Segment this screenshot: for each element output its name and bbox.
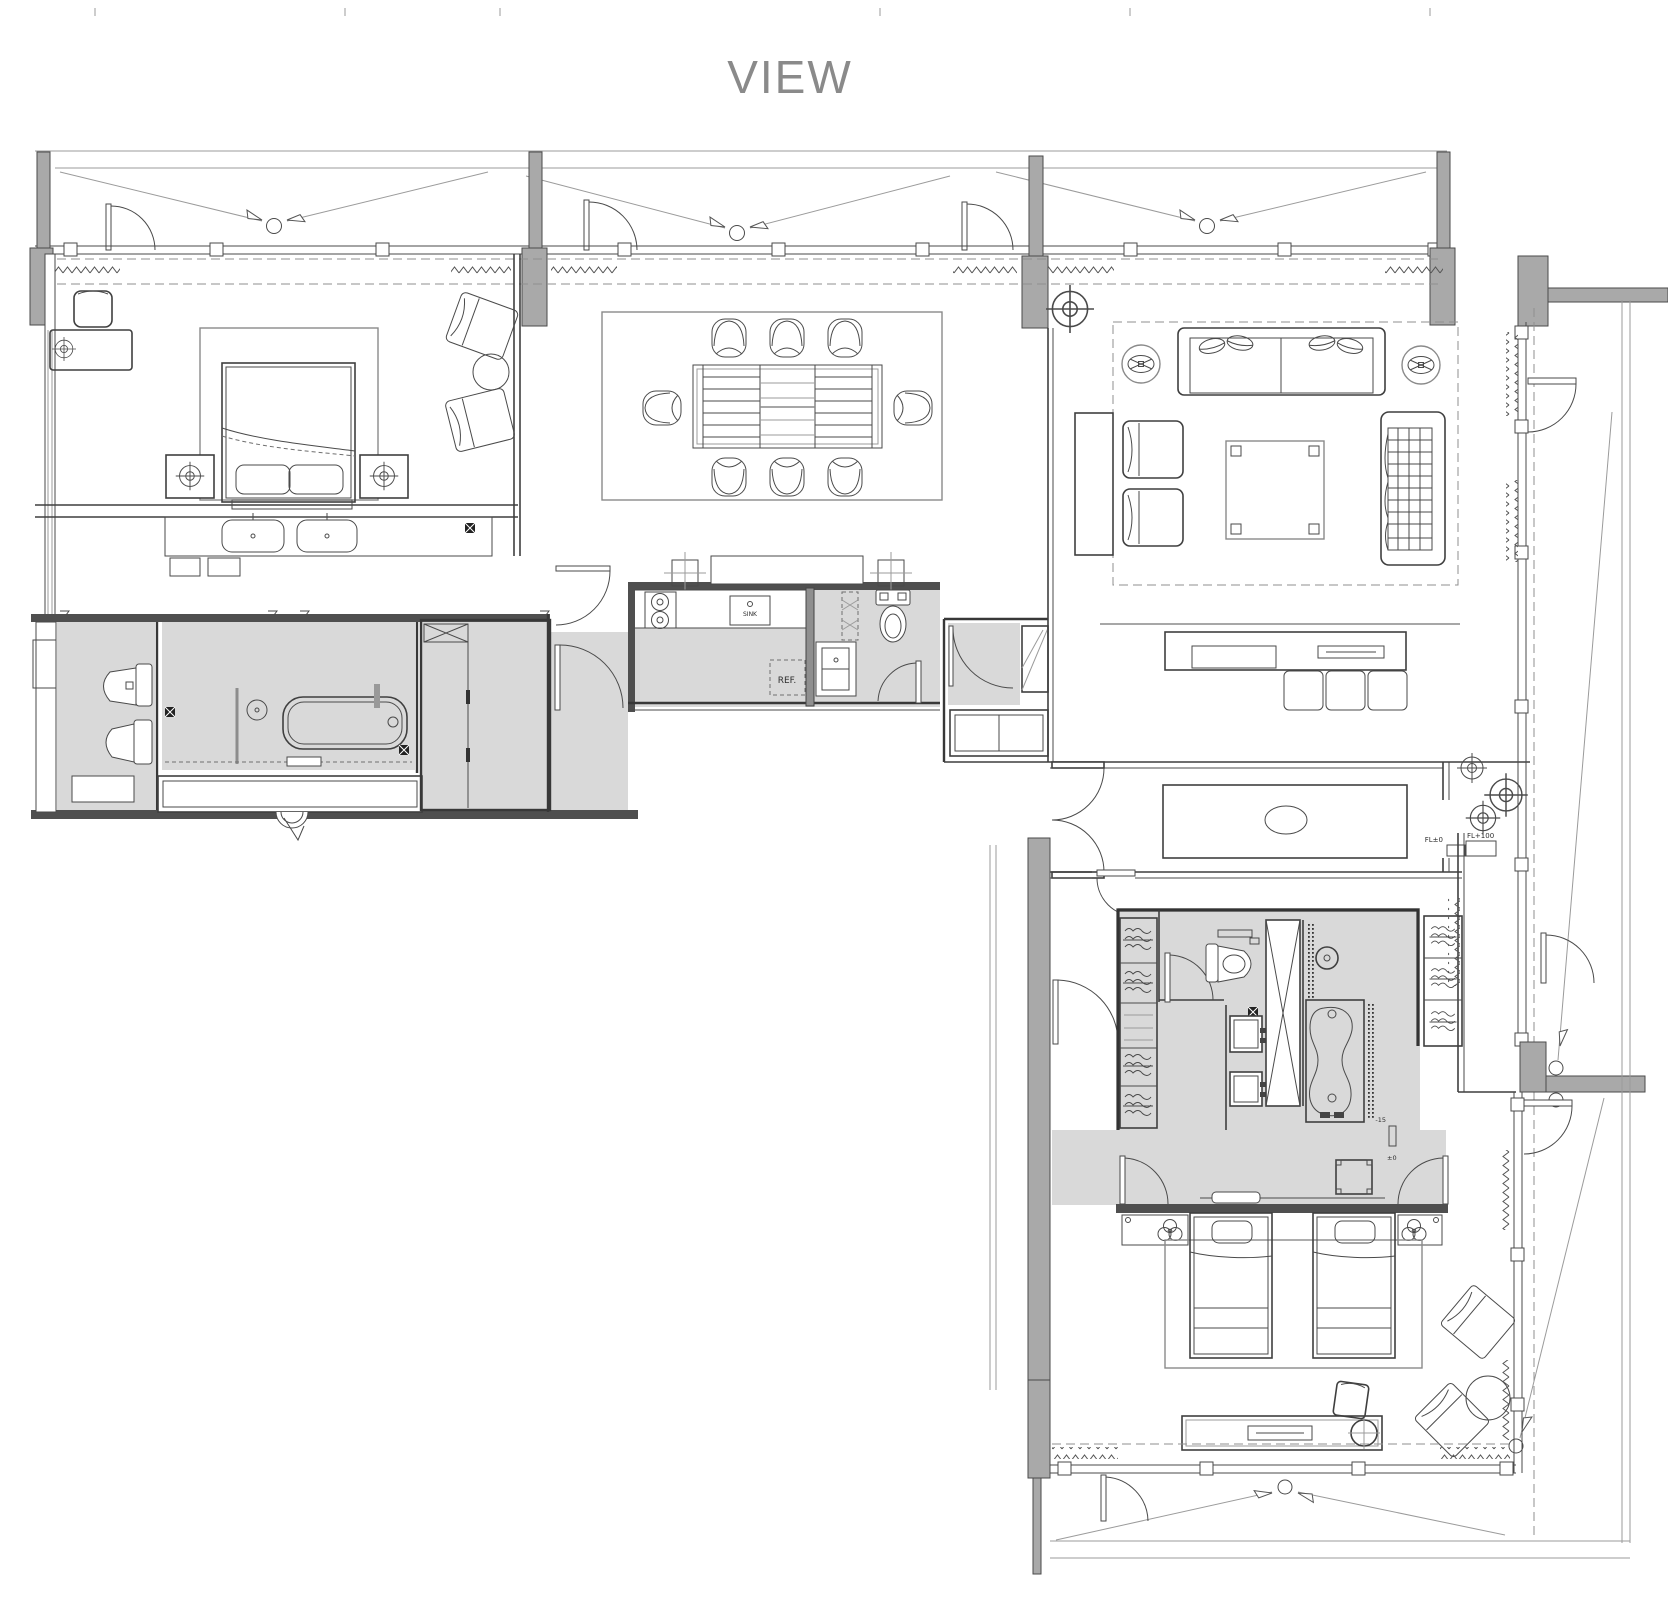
armchair xyxy=(1123,421,1183,478)
console-cabinet xyxy=(1075,413,1113,555)
grid-marker xyxy=(1484,773,1528,817)
floor-drain xyxy=(165,707,175,717)
dining-chair xyxy=(712,458,746,496)
balcony-door-bedroom xyxy=(106,204,155,250)
stool xyxy=(170,558,200,576)
side-table xyxy=(473,354,509,390)
basin xyxy=(1230,1072,1262,1106)
grid-marker xyxy=(1457,753,1487,783)
sofa-pillow xyxy=(1336,336,1365,356)
balcony-swing-door-2 xyxy=(1524,1100,1572,1154)
dining-chair xyxy=(712,319,746,357)
hall-door xyxy=(1097,870,1135,876)
tv-console xyxy=(1165,632,1406,670)
kitchen: SINK REF. xyxy=(628,552,940,712)
tufted-daybed xyxy=(1381,412,1445,565)
speaker xyxy=(1402,346,1440,384)
nightstand-right xyxy=(360,455,408,498)
foyer-console-table xyxy=(1163,785,1407,858)
east-balcony-lower xyxy=(1502,1092,1604,1473)
vestibule-door xyxy=(949,626,953,686)
decor-bowl xyxy=(1265,806,1307,834)
balcony-swing-door xyxy=(1528,378,1576,432)
bed-pillow xyxy=(236,465,290,494)
kitchen-partition-wall xyxy=(806,588,814,706)
ottoman xyxy=(1284,671,1323,710)
dining-chair xyxy=(894,391,932,425)
window-wall-north xyxy=(35,243,1447,256)
entry-double-doors xyxy=(1052,762,1104,878)
desk-2 xyxy=(1182,1381,1382,1450)
master-bathroom xyxy=(31,566,638,840)
second-bathroom: -15 ±0 xyxy=(1052,908,1462,1205)
sliding-panel-direction xyxy=(1558,412,1612,1060)
tiled-wall xyxy=(1366,1002,1374,1118)
king-bed xyxy=(222,363,355,509)
vanity-sink xyxy=(222,520,284,552)
lounge-chair xyxy=(445,388,516,453)
bath-bench-counter xyxy=(158,776,422,840)
hanging-clothes xyxy=(1430,1012,1457,1031)
entry-step: FL±0 FL+100 xyxy=(1425,832,1496,856)
lounge-chair-2 xyxy=(1414,1382,1490,1458)
curtain-track-north xyxy=(53,259,1443,284)
slide-direction-bay-3 xyxy=(996,172,1426,234)
sliding-panel-direction-2 xyxy=(1520,1098,1604,1438)
slide-direction-bay-2 xyxy=(526,176,950,241)
pass-through-counter xyxy=(711,556,863,584)
floor-drain xyxy=(399,745,409,755)
powder-door xyxy=(916,661,921,703)
living-room xyxy=(1048,322,1460,762)
column-grid-marker xyxy=(1046,285,1094,333)
bed-pillow xyxy=(289,465,343,494)
dining-table xyxy=(693,365,882,448)
second-bedroom xyxy=(1116,1204,1516,1458)
sofa xyxy=(1178,328,1385,395)
sofa-pillow xyxy=(1198,336,1227,356)
curtain-zigzag-v xyxy=(1502,1150,1514,1230)
curtain-zigzag xyxy=(53,266,120,278)
bolster xyxy=(1212,1192,1260,1203)
twin-bed-2 xyxy=(1313,1213,1395,1358)
coffee-table xyxy=(1226,441,1324,539)
headboard-wall xyxy=(1116,1204,1448,1213)
level-zero-label: ±0 xyxy=(1387,1154,1397,1162)
curtain-zigzag xyxy=(1052,1447,1118,1459)
mirror-cabinet xyxy=(1022,626,1048,692)
desk-chair xyxy=(74,291,112,327)
tall-cabinet xyxy=(1266,920,1300,1106)
level-minus15-label: -15 xyxy=(1375,1116,1386,1124)
dimension-ticks xyxy=(95,8,1430,16)
armchair xyxy=(1123,489,1183,546)
floor-plan-drawing: SINK REF. xyxy=(0,0,1668,1598)
top-balcony xyxy=(35,8,1447,250)
entry-vestibule xyxy=(944,619,1050,762)
ottoman xyxy=(1368,671,1407,710)
twin-bed-1 xyxy=(1190,1213,1272,1358)
bedroom2-rug xyxy=(1165,1240,1422,1368)
dining-chair xyxy=(643,391,681,425)
dining-room xyxy=(602,312,942,500)
dining-chair xyxy=(770,319,804,357)
structural-columns xyxy=(30,152,1668,333)
curtain-zigzag-v xyxy=(1506,332,1518,416)
ottoman xyxy=(1326,671,1365,710)
east-balcony-upper xyxy=(1506,300,1645,1543)
dining-chair xyxy=(828,319,862,357)
corridor-partition-door xyxy=(1053,980,1118,1044)
south-balcony xyxy=(1050,1444,1630,1558)
bath-cabinet xyxy=(72,776,134,802)
grab-bar xyxy=(374,684,380,708)
sink-label: SINK xyxy=(743,611,758,618)
floor-plan-page: VIEW xyxy=(0,0,1668,1598)
speaker xyxy=(1122,345,1160,383)
lounge-chair xyxy=(445,291,519,360)
sofa-pillow xyxy=(1226,334,1254,352)
stool xyxy=(208,558,240,576)
refrigerator-label: REF. xyxy=(778,676,797,686)
basin xyxy=(1230,1016,1262,1052)
balcony-door-living xyxy=(962,202,1013,250)
tiled-wall xyxy=(1306,922,1316,998)
double-vanity-dresser xyxy=(165,513,492,576)
floor-level-zero-label: FL±0 xyxy=(1425,836,1443,844)
writing-desk xyxy=(50,291,132,370)
nightstand-left xyxy=(166,455,214,498)
south-balcony-door xyxy=(1101,1475,1148,1521)
slide-direction-bay-1 xyxy=(60,172,488,234)
powder-basin xyxy=(816,642,856,696)
floor-level-plus100-label: FL+100 xyxy=(1467,832,1494,840)
desk-lamp xyxy=(52,337,76,361)
vanity-sink xyxy=(297,520,357,552)
sofa-pillow xyxy=(1308,334,1336,352)
lounge-chair-2 xyxy=(1440,1284,1516,1360)
shoe-cabinet xyxy=(950,710,1048,756)
dining-chair xyxy=(828,458,862,496)
dining-chair xyxy=(770,458,804,496)
slide-direction-south xyxy=(1056,1480,1505,1540)
